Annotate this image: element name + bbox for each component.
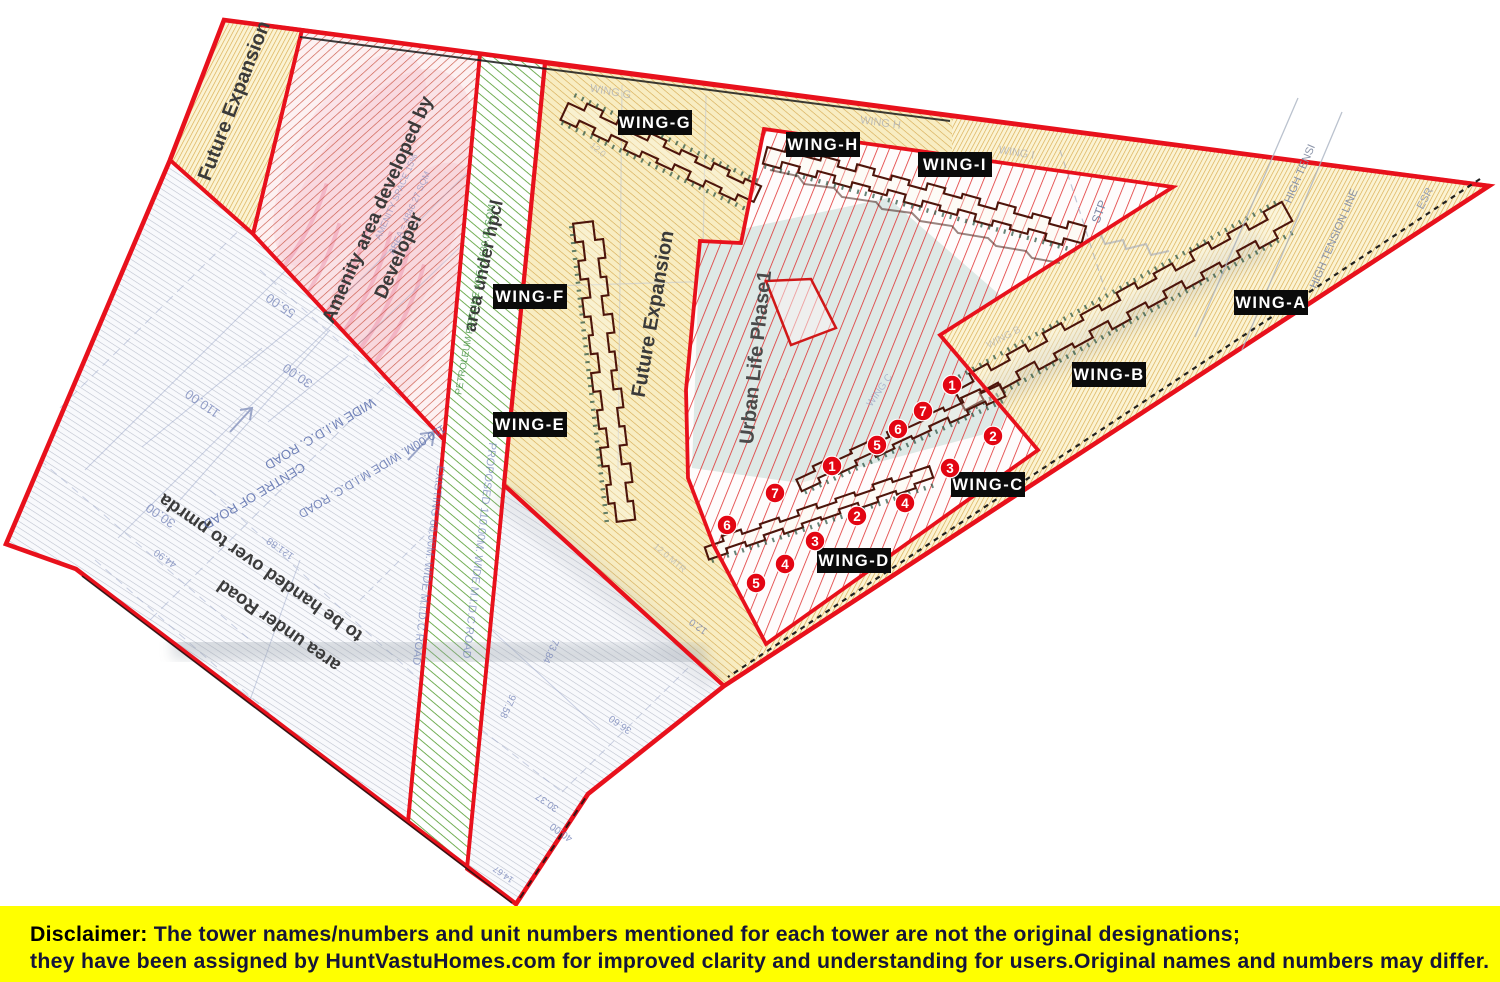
svg-text:7: 7 xyxy=(771,486,779,501)
svg-text:6: 6 xyxy=(894,422,902,437)
svg-text:4: 4 xyxy=(781,557,789,572)
svg-text:WING-H: WING-H xyxy=(787,136,858,154)
svg-text:WING-D: WING-D xyxy=(818,552,889,570)
svg-text:2: 2 xyxy=(989,429,997,444)
svg-text:WING-B: WING-B xyxy=(1073,366,1144,384)
svg-text:3: 3 xyxy=(811,534,819,549)
svg-text:WING-I: WING-I xyxy=(923,156,987,174)
svg-text:5: 5 xyxy=(873,438,881,453)
svg-text:3: 3 xyxy=(946,461,954,476)
svg-text:Disclaimer: The tower names/nu: Disclaimer: The tower names/numbers and … xyxy=(30,922,1240,946)
svg-text:WING-F: WING-F xyxy=(495,288,564,306)
svg-text:2: 2 xyxy=(853,509,861,524)
svg-text:WING-C: WING-C xyxy=(952,476,1023,494)
svg-text:1: 1 xyxy=(948,378,956,393)
svg-text:they have been assigned by Hun: they have been assigned by HuntVastuHome… xyxy=(30,949,1489,973)
svg-text:7: 7 xyxy=(919,404,927,419)
svg-text:5: 5 xyxy=(752,576,760,591)
svg-text:WING-G: WING-G xyxy=(619,114,691,132)
svg-text:WING-E: WING-E xyxy=(495,416,565,434)
svg-text:WING-A: WING-A xyxy=(1235,294,1306,312)
svg-text:1: 1 xyxy=(828,459,836,474)
svg-text:4: 4 xyxy=(901,496,909,511)
svg-text:6: 6 xyxy=(723,518,731,533)
